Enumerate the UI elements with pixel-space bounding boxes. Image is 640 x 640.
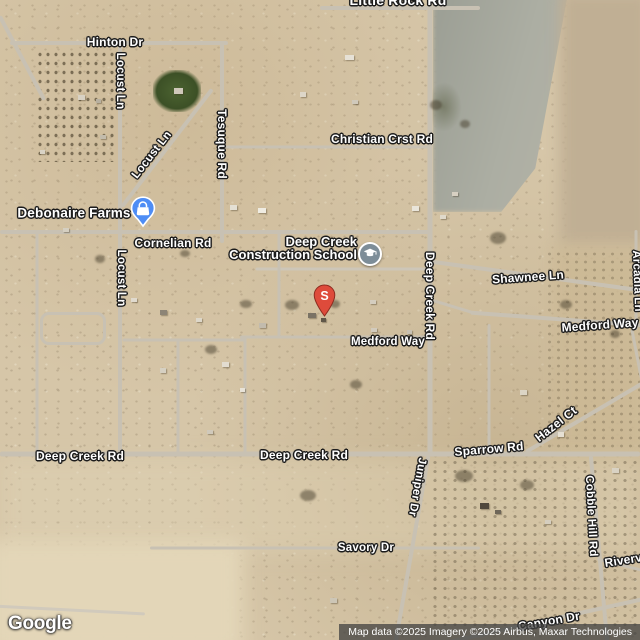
- road-label-medford-way: Medford Way: [351, 336, 425, 348]
- vegetation-blob: [490, 232, 506, 244]
- vegetation-blob: [350, 380, 362, 389]
- building: [160, 368, 166, 373]
- building: [240, 388, 245, 392]
- building: [160, 310, 167, 315]
- road-segment: [244, 337, 247, 456]
- building: [330, 598, 337, 603]
- building: [196, 318, 202, 322]
- building: [258, 208, 266, 213]
- vegetation-blob: [520, 480, 534, 490]
- map-pin-icon: S: [313, 284, 336, 317]
- road-segment: [36, 230, 39, 456]
- vegetation-blob: [460, 120, 470, 128]
- vegetation-blob: [240, 300, 252, 308]
- building: [407, 330, 412, 334]
- building: [300, 92, 306, 97]
- graduation-cap-icon: [363, 247, 377, 261]
- building: [207, 430, 213, 434]
- building: [520, 390, 527, 395]
- vegetation-blob: [285, 300, 299, 310]
- building: [174, 88, 183, 94]
- building: [412, 206, 419, 211]
- building: [131, 298, 137, 302]
- road-label-locust-ln-top: Locust Ln: [114, 53, 126, 110]
- s-marker-pin[interactable]: S: [313, 284, 336, 317]
- building: [495, 510, 501, 514]
- road-segment: [150, 547, 480, 550]
- road-label-little-rock-rd: Little Rock Rd: [350, 0, 447, 8]
- vegetation-blob: [95, 255, 105, 263]
- building: [63, 228, 69, 232]
- road-label-arcadia-ln: Arcadia Ln: [630, 250, 640, 312]
- building: [100, 135, 106, 139]
- school-poi-circle: [358, 242, 382, 266]
- building: [259, 323, 266, 328]
- vegetation-blob: [300, 490, 316, 501]
- road-label-deep-creek-rd-vertical: Deep Creek Rd: [423, 252, 437, 340]
- road-label-hinton-dr: Hinton Dr: [87, 35, 143, 49]
- google-logo[interactable]: Google: [8, 613, 72, 635]
- building: [371, 328, 377, 332]
- building: [222, 362, 229, 367]
- vegetation-blob: [180, 250, 190, 257]
- building: [352, 100, 358, 104]
- building: [545, 520, 551, 524]
- building: [612, 468, 619, 473]
- building: [96, 99, 101, 103]
- vegetation-blob: [560, 300, 572, 309]
- road-label-cornelian-rd: Cornelian Rd: [134, 236, 211, 250]
- road-culdesac-loop: [40, 312, 106, 345]
- road-segment: [177, 340, 180, 456]
- terrain-ne: [560, 0, 640, 247]
- road-segment: [256, 268, 431, 271]
- building: [370, 300, 376, 304]
- debonaire-farms-pin[interactable]: [130, 196, 156, 229]
- road-segment: [123, 339, 246, 342]
- road-label-tesuque-rd: Tesuque Rd: [215, 109, 229, 179]
- road-label-christian-crst-rd: Christian Crst Rd: [331, 132, 433, 146]
- place-label-debonaire-farms: Debonaire Farms: [17, 206, 130, 221]
- road-label-savory-dr: Savory Dr: [338, 542, 394, 554]
- building: [321, 318, 326, 322]
- school-label-line2: Construction School: [229, 249, 357, 262]
- shopping-pin-shape: [130, 196, 156, 229]
- building: [452, 192, 458, 196]
- school-poi-marker[interactable]: [358, 242, 382, 266]
- building: [230, 205, 237, 210]
- map-canvas[interactable]: Little Rock Rd Hinton Dr Locust Ln Locus…: [0, 0, 640, 640]
- road-label-deep-creek-rd-center: Deep Creek Rd: [260, 448, 348, 462]
- vegetation-blob: [455, 470, 473, 482]
- building: [480, 503, 489, 509]
- vegetation-blob: [430, 100, 442, 110]
- building: [78, 95, 85, 100]
- building: [40, 150, 45, 154]
- orchard-rows: [36, 50, 124, 162]
- road-segment: [488, 324, 491, 454]
- vegetation-blob: [205, 345, 217, 354]
- road-label-deep-creek-rd-west: Deep Creek Rd: [36, 449, 124, 463]
- road-label-locust-ln-mid: Locust Ln: [115, 250, 127, 307]
- place-label-deep-creek-construction-school: Deep Creek Construction School: [229, 236, 357, 261]
- building: [558, 432, 564, 437]
- road-segment: [428, 0, 433, 456]
- attribution-bar[interactable]: Map data ©2025 Imagery ©2025 Airbus, Max…: [339, 624, 640, 640]
- building: [345, 55, 354, 60]
- pin-letter: S: [320, 289, 328, 303]
- building: [440, 215, 446, 219]
